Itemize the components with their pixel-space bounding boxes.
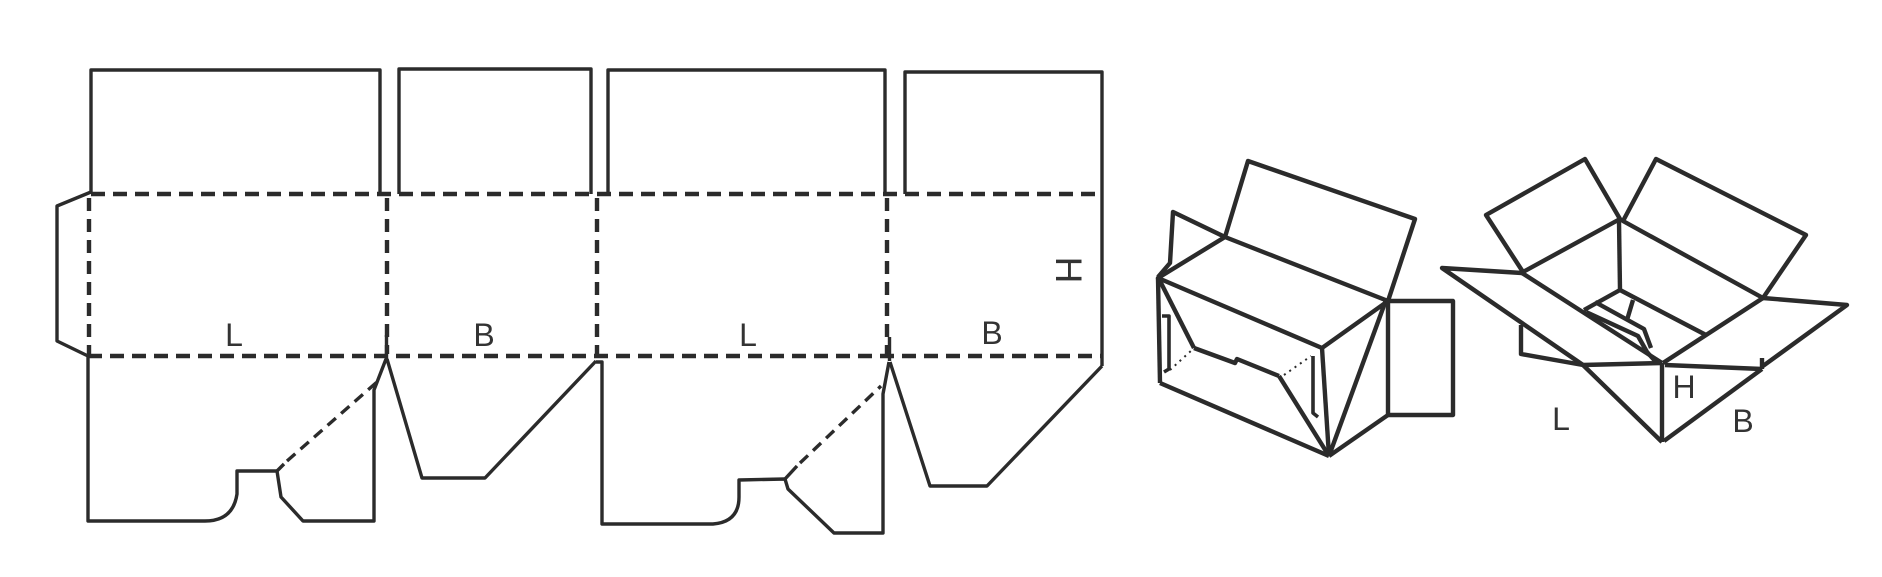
svg-text:H: H — [1672, 369, 1695, 405]
svg-text:L: L — [1552, 401, 1570, 437]
svg-text:L: L — [739, 317, 757, 353]
svg-text:L: L — [225, 317, 243, 353]
svg-text:H: H — [1048, 257, 1089, 284]
svg-text:B: B — [981, 315, 1002, 351]
svg-text:B: B — [1732, 403, 1753, 439]
svg-text:B: B — [473, 317, 494, 353]
